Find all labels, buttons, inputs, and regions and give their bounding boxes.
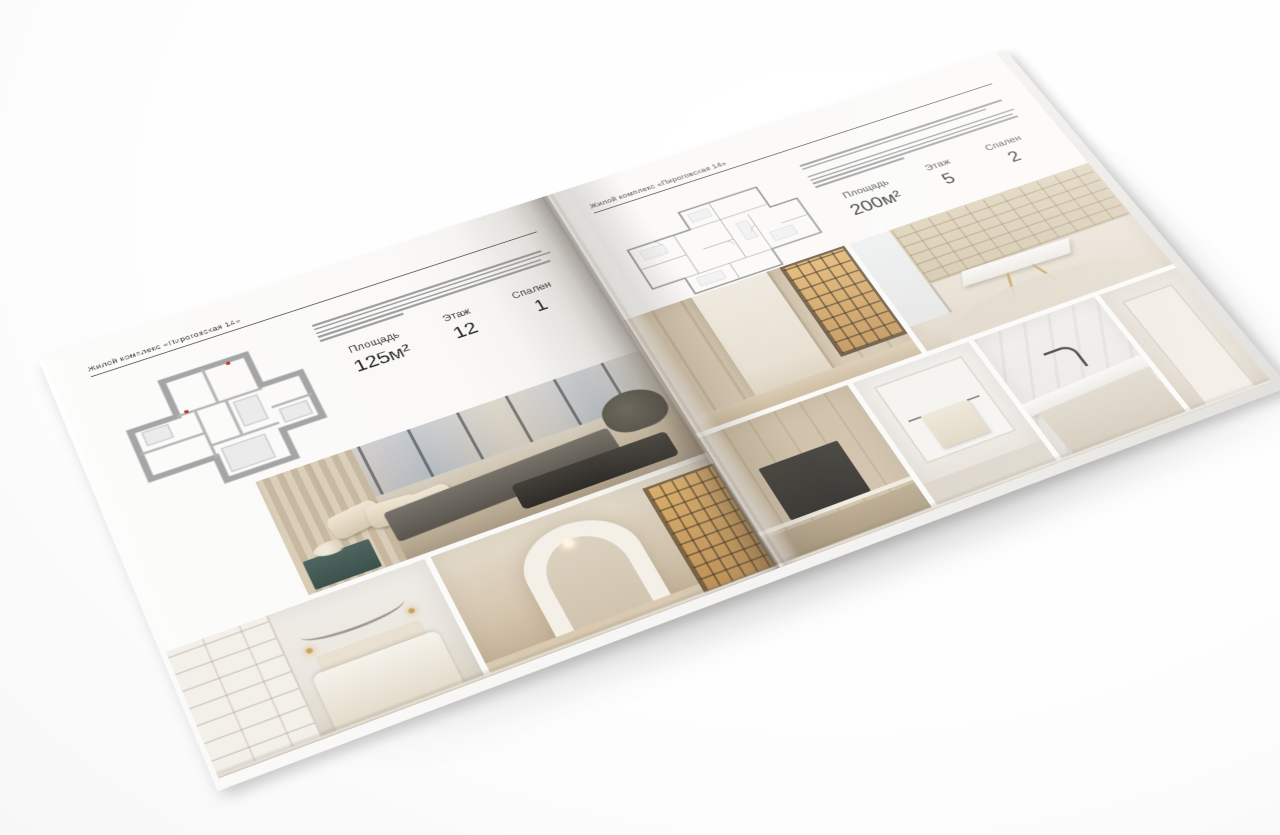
wall-niche: [873, 356, 1016, 464]
towel: [920, 399, 990, 448]
window-city-view: [255, 349, 670, 531]
page-edge: [775, 376, 1273, 567]
photo-master-bedroom: [255, 349, 706, 595]
chandelier-glow: [550, 529, 586, 558]
stat-floor: Этаж 12: [417, 298, 508, 352]
bed-bench: [511, 431, 680, 510]
wall-sconce: [407, 607, 415, 614]
arch-doorway: [532, 525, 659, 642]
pillow: [404, 482, 459, 520]
flower-vase: [310, 536, 350, 560]
curtains: [255, 449, 407, 595]
photo-arched-hallway: [430, 457, 779, 676]
pillow: [324, 498, 387, 542]
console-table: [303, 539, 382, 590]
kitchen-counter: [757, 476, 913, 537]
dark-range: [758, 440, 871, 520]
wall-sconce: [306, 647, 314, 654]
armchair: [593, 382, 675, 438]
brochure-spread: Жилой комплекс «Пироговская 14»: [43, 52, 1272, 779]
page-left-details: Площадь 125м² Этаж 12 Спален 1: [295, 247, 617, 445]
bed-throw: [383, 427, 625, 542]
scene: Жилой комплекс «Пироговская 14»: [0, 0, 1280, 835]
towel-rail: [908, 395, 979, 422]
page-edge: [215, 561, 779, 779]
shelving-unit: [166, 615, 324, 778]
headboard: [315, 619, 430, 679]
pillow: [363, 492, 424, 530]
wall-garland: [296, 590, 409, 647]
photo-white-bedroom: [166, 559, 486, 779]
